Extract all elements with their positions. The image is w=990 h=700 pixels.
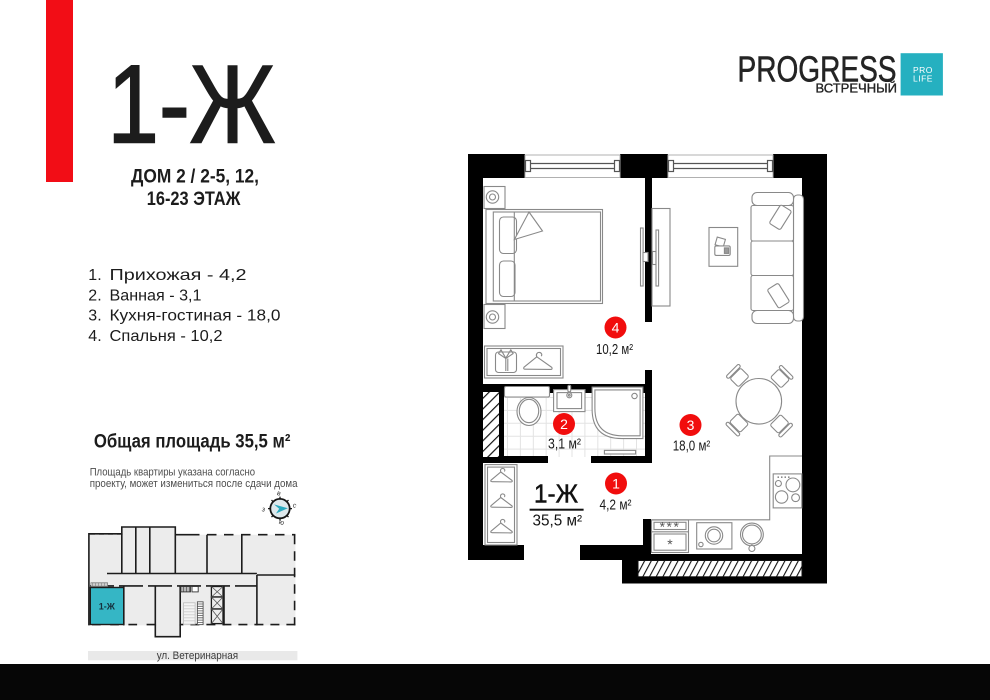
svg-text:18,0 м²: 18,0 м² — [673, 439, 711, 455]
svg-text:1-Ж: 1-Ж — [107, 43, 275, 167]
svg-text:ул. Ветеринарная: ул. Ветеринарная — [157, 650, 238, 662]
svg-text:1: 1 — [612, 475, 620, 491]
svg-text:1-Ж: 1-Ж — [534, 480, 578, 508]
svg-text:4.: 4. — [88, 328, 101, 345]
svg-text:Ванная - 3,1: Ванная - 3,1 — [110, 287, 202, 304]
svg-text:ДОМ 2 / 2-5, 12,: ДОМ 2 / 2-5, 12, — [131, 167, 259, 188]
svg-text:с: с — [292, 502, 298, 510]
svg-text:Общая площадь 35,5 м²: Общая площадь 35,5 м² — [94, 432, 291, 453]
svg-text:ВСТРЕЧНЫЙ: ВСТРЕЧНЫЙ — [816, 81, 898, 96]
svg-text:*: * — [667, 536, 673, 552]
svg-text:проекту, может измениться посл: проекту, может измениться после сдачи до… — [90, 478, 299, 490]
svg-text:в: в — [276, 490, 282, 498]
svg-text:Кухня-гостиная - 18,0: Кухня-гостиная - 18,0 — [110, 308, 281, 325]
svg-text:LIFE: LIFE — [913, 74, 933, 84]
svg-text:3.: 3. — [88, 308, 101, 325]
svg-text:3,1 м²: 3,1 м² — [548, 437, 581, 453]
svg-text:2: 2 — [560, 416, 568, 432]
svg-text:Прихожая - 4,2: Прихожая - 4,2 — [110, 267, 247, 284]
svg-text:10,2 м²: 10,2 м² — [596, 342, 633, 358]
svg-text:1.: 1. — [88, 267, 101, 284]
svg-text:***: *** — [660, 519, 681, 535]
svg-text:3: 3 — [687, 417, 695, 433]
svg-text:Площадь квартиры указана согла: Площадь квартиры указана согласно — [90, 467, 255, 479]
svg-text:Спальня - 10,2: Спальня - 10,2 — [110, 328, 223, 345]
svg-text:ю: ю — [278, 519, 285, 527]
svg-text:2.: 2. — [88, 287, 101, 304]
svg-text:35,5 м²: 35,5 м² — [533, 512, 583, 529]
svg-text:1-Ж: 1-Ж — [99, 602, 116, 612]
svg-text:4,2 м²: 4,2 м² — [600, 498, 632, 514]
svg-text:16-23 ЭТАЖ: 16-23 ЭТАЖ — [147, 189, 241, 210]
svg-text:4: 4 — [612, 320, 620, 336]
svg-text:з: з — [261, 506, 266, 514]
